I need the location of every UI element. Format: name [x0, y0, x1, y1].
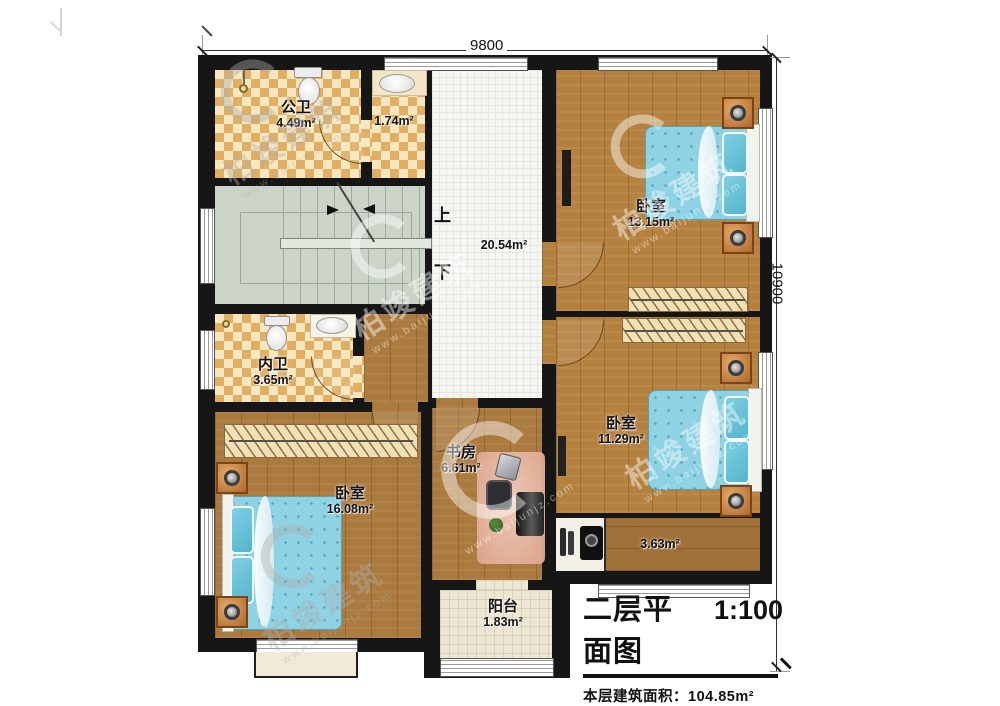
pillow	[722, 132, 748, 174]
room-label-public-bath: 公卫 4.49m²	[276, 99, 316, 131]
room-label-bedroom-bottom-left: 卧室 16.08m²	[327, 485, 374, 517]
opening-bedroom-top-right	[542, 242, 556, 286]
floor-plan-canvas: 公卫 4.49m² 1.74m² 20.54m² 卧室 13.15m² 内卫 3…	[0, 0, 1000, 706]
bottle	[560, 528, 566, 556]
room-label-bedroom-right: 卧室 11.29m²	[598, 415, 644, 447]
room-floor-hallway	[432, 70, 542, 398]
shower-head	[239, 84, 248, 93]
plan-title: 二层平面图	[583, 586, 702, 670]
closet-bedroom-bottom-left	[224, 424, 418, 458]
dimension-width-label: 9800	[466, 37, 507, 54]
bed-sheet-fold-top-right	[698, 126, 718, 218]
room-label-small-bath: 1.74m²	[374, 114, 414, 128]
crop-mark	[201, 25, 212, 36]
tv-panel-right	[558, 436, 566, 476]
window-top-hall	[384, 57, 528, 71]
nightstand	[720, 485, 752, 517]
opening-study	[436, 398, 478, 408]
sink	[379, 74, 415, 93]
plan-scale: 1:100	[714, 595, 783, 626]
closet-bedroom-right	[622, 318, 746, 343]
pillow	[722, 174, 748, 216]
window-top-bedroom	[598, 57, 718, 71]
window-left-stair	[200, 208, 215, 284]
floor-area-line: 本层建筑面积：104.85m²	[583, 685, 783, 706]
pillow	[230, 506, 254, 554]
window-right-bedroom-top	[758, 108, 773, 238]
stair-up-label: 上	[434, 201, 451, 226]
stair-handrail	[280, 238, 432, 249]
bed-sheet-fold-bottom-left	[254, 496, 274, 628]
room-label-corridor: 3.63m²	[640, 537, 680, 551]
opening-balcony	[476, 580, 528, 590]
office-chair	[486, 480, 512, 510]
bottle	[568, 531, 574, 555]
extension-line	[770, 57, 790, 58]
bed-headboard-right	[748, 388, 762, 492]
nightstand	[216, 462, 248, 494]
washer-drum	[585, 534, 598, 547]
nightstand	[216, 596, 248, 628]
stair-arrow-right	[327, 205, 339, 215]
porch-canopy	[254, 652, 358, 678]
room-label-inner-bath: 内卫 3.65m²	[253, 356, 293, 388]
opening-bedroom-right	[542, 320, 556, 364]
pillow	[724, 440, 750, 484]
window-left-inner-bath	[200, 330, 215, 390]
opening-bedroom-bottom-left	[372, 402, 418, 412]
sink	[316, 317, 348, 334]
dimension-height-label: 10900	[768, 259, 785, 309]
tv-panel-top-right	[562, 150, 571, 206]
bed-headboard-top-right	[746, 124, 760, 222]
toilet-bowl	[266, 325, 287, 351]
stair-down-label: 下	[434, 258, 451, 283]
room-label-study: 书房 6.61m²	[441, 444, 481, 476]
shower-head	[222, 320, 230, 328]
window-bottom-bedroom	[256, 639, 358, 653]
title-block: 二层平面图 1:100 本层建筑面积：104.85m² 层高：3.3m	[583, 586, 783, 706]
nightstand	[722, 97, 754, 129]
stair-arrow-left	[363, 204, 375, 214]
nightstand	[720, 352, 752, 384]
window-left-bedroom	[200, 508, 215, 596]
nightstand	[722, 222, 754, 254]
pillow	[724, 396, 750, 440]
room-floor-entry-strip	[364, 314, 428, 402]
closet-bedroom-top-right	[628, 287, 748, 312]
room-label-balcony: 阳台 1.83m²	[483, 598, 523, 630]
potted-plant	[489, 518, 503, 532]
title-underline	[583, 674, 778, 678]
room-label-bedroom-top-right: 卧室 13.15m²	[628, 198, 675, 230]
bed-sheet-fold-right	[700, 390, 720, 488]
balcony-railing	[440, 658, 554, 677]
dimension-line-right	[776, 57, 777, 672]
room-label-hallway: 20.54m²	[481, 238, 528, 252]
computer-monitor	[516, 492, 544, 536]
